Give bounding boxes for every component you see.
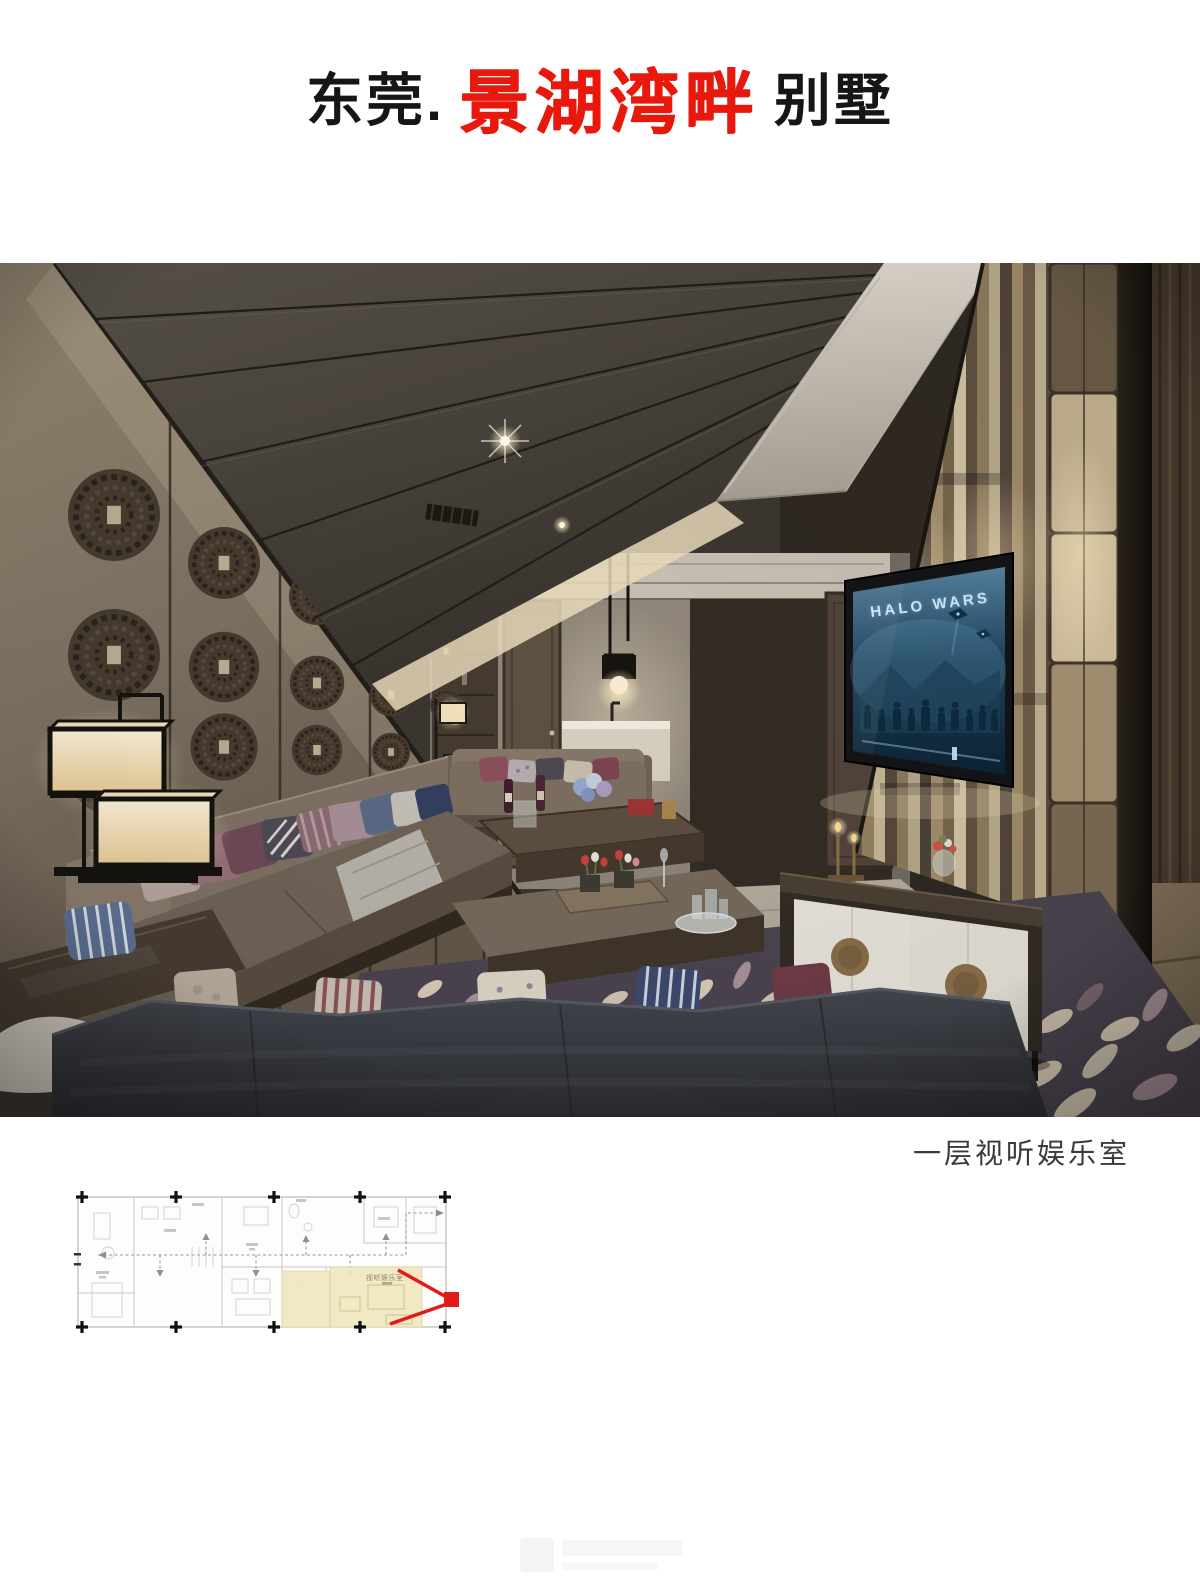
- render-scene: HALO WARS HALO WARS: [0, 263, 1200, 1117]
- title-suffix: 别墅: [774, 69, 894, 133]
- photo-vignette: [0, 263, 1200, 1117]
- plan-room-label: 视听娱乐室: [366, 1273, 404, 1282]
- page-title: 东莞. 景湖湾畔 别墅: [0, 46, 1200, 146]
- watermark-logo: [520, 1538, 690, 1578]
- photo-caption: 一层视听娱乐室: [913, 1132, 1130, 1172]
- floor-plan: 视听娱乐室: [68, 1183, 460, 1345]
- presentation-page: 东莞. 景湖湾畔 别墅: [0, 0, 1200, 1580]
- interior-render-photo: HALO WARS HALO WARS: [0, 263, 1200, 1117]
- title-prefix: 东莞.: [306, 69, 445, 133]
- watermark-subtext-bar: [562, 1562, 658, 1570]
- watermark-mark: [520, 1538, 554, 1572]
- camera-position-marker: [444, 1292, 459, 1307]
- title-highlight: 景湖湾畔: [449, 62, 769, 143]
- watermark-text-bar: [562, 1540, 682, 1556]
- floor-plan-drawing: 视听娱乐室: [68, 1183, 460, 1345]
- plan-highlight-room: 视听娱乐室: [282, 1267, 422, 1327]
